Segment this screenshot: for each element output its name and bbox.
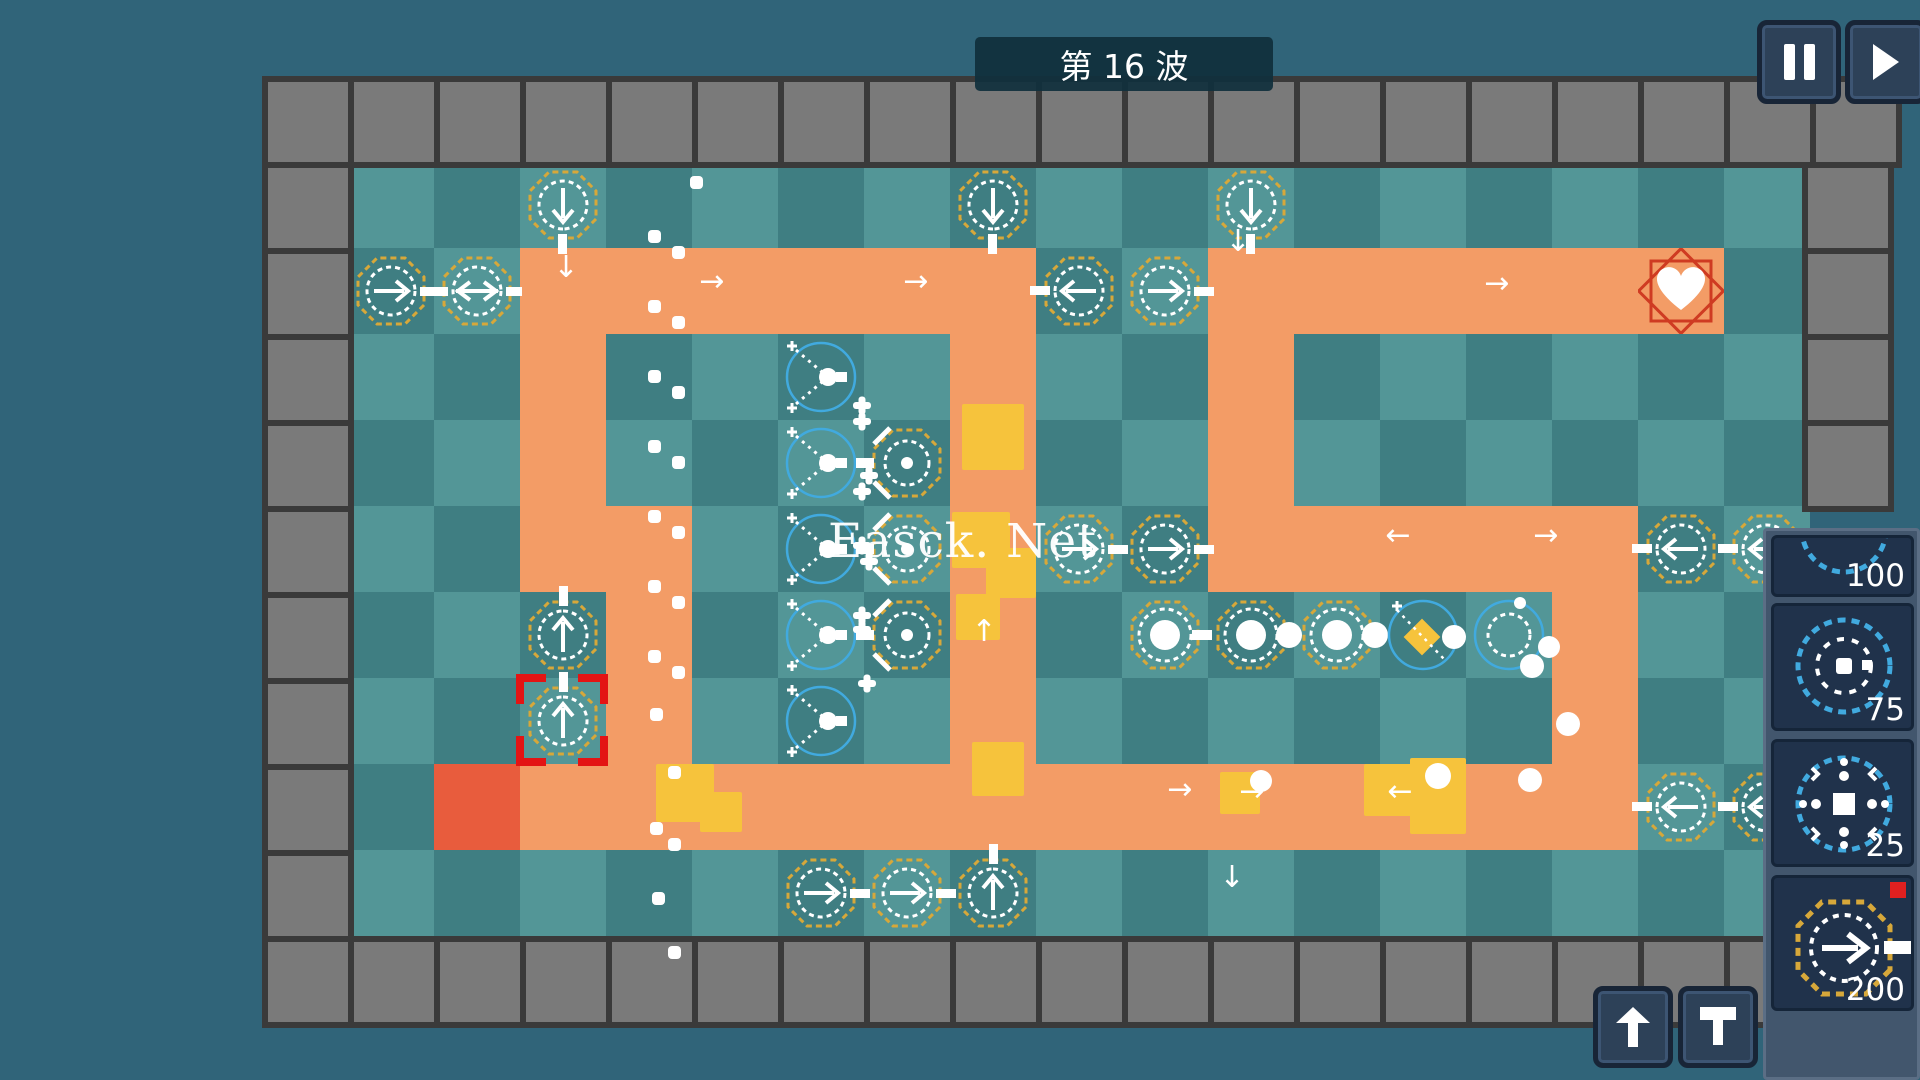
wall-tile	[956, 942, 1036, 1022]
enemy-square	[972, 742, 1024, 796]
direction-arrow: →	[903, 267, 928, 297]
projectile-dot	[648, 300, 661, 313]
projectile-dot	[672, 526, 685, 539]
board-tile[interactable]	[1552, 850, 1638, 936]
board-tile[interactable]	[1122, 334, 1208, 420]
board-tile[interactable]	[1724, 334, 1810, 420]
path-tile	[1122, 764, 1208, 850]
shop-card-blue-circle[interactable]: 100	[1771, 535, 1914, 597]
board-tile[interactable]	[434, 334, 520, 420]
wall-tile	[1214, 82, 1294, 162]
wall-tile	[698, 942, 778, 1022]
wall-tile	[1808, 426, 1888, 506]
board-tile[interactable]	[1380, 334, 1466, 420]
path-tile	[606, 678, 692, 764]
pause-icon	[1784, 44, 1815, 80]
wall-tile	[354, 942, 434, 1022]
board-tile[interactable]	[348, 678, 434, 764]
projectile-ball	[1518, 768, 1542, 792]
tower-arrow-right[interactable]	[778, 850, 864, 936]
shop-card-burst[interactable]: 25	[1771, 739, 1914, 867]
projectile-flake	[853, 620, 871, 638]
projectile-dot	[672, 456, 685, 469]
wall-tile	[268, 770, 348, 850]
tower-arrow-down[interactable]	[950, 162, 1036, 248]
wall-tile	[1128, 82, 1208, 162]
board-tile[interactable]	[348, 334, 434, 420]
path-tile	[1208, 334, 1294, 420]
wall-tile	[268, 254, 348, 334]
tower-bluediamond[interactable]	[1380, 592, 1466, 678]
wall-tile	[784, 82, 864, 162]
board-tile[interactable]	[1466, 678, 1552, 764]
path-tile	[1552, 592, 1638, 678]
wall-tile	[268, 856, 348, 936]
path-tile	[1208, 420, 1294, 506]
wall-tile	[1128, 942, 1208, 1022]
tower-shop-sidebar: 100 75 25	[1763, 528, 1920, 1080]
tower-price: 25	[1866, 828, 1905, 864]
wall-tile	[698, 82, 778, 162]
tower-arrow-up[interactable]	[520, 592, 606, 678]
wall-tile	[526, 82, 606, 162]
projectile-flake	[853, 482, 871, 500]
wall-tile	[268, 598, 348, 678]
board-tile[interactable]	[434, 162, 520, 248]
board-tile[interactable]	[1294, 334, 1380, 420]
wall-tile	[1558, 82, 1638, 162]
board-tile[interactable]	[434, 592, 520, 678]
wall-tile	[784, 942, 864, 1022]
projectile-dot	[672, 596, 685, 609]
direction-arrow: ←	[1387, 777, 1412, 807]
projectile-dot	[648, 510, 661, 523]
direction-arrow: →	[1533, 521, 1558, 551]
wall-tile	[1472, 942, 1552, 1022]
board-tile[interactable]	[1036, 334, 1122, 420]
path-tile	[1208, 248, 1294, 334]
projectile-ball	[1425, 763, 1451, 789]
base-heart	[1638, 248, 1724, 334]
tower-vgun[interactable]	[864, 420, 950, 506]
board-tile[interactable]	[1380, 850, 1466, 936]
board-tile[interactable]	[348, 850, 434, 936]
wall-tile	[1808, 340, 1888, 420]
board-tile[interactable]	[1638, 334, 1724, 420]
tower-cannon-rect[interactable]	[1122, 592, 1208, 678]
board-tile[interactable]	[348, 764, 434, 850]
path-tile	[520, 334, 606, 420]
sell-button[interactable]	[1678, 986, 1758, 1068]
board-tile[interactable]	[1036, 592, 1122, 678]
direction-arrow: ↑	[971, 617, 996, 647]
projectile-dot	[652, 892, 665, 905]
board-tile[interactable]	[1036, 420, 1122, 506]
board-tile[interactable]	[1380, 678, 1466, 764]
tower-arrow-both[interactable]	[434, 248, 520, 334]
projectile-dot	[672, 666, 685, 679]
board-tile[interactable]	[692, 506, 778, 592]
projectile-dot	[648, 440, 661, 453]
board-tile[interactable]	[1294, 420, 1380, 506]
board-tile[interactable]	[1466, 162, 1552, 248]
projectile-dot	[648, 230, 661, 243]
tower-arrow-left[interactable]	[1638, 506, 1724, 592]
wave-label: 第 16 波	[1060, 40, 1189, 88]
selection-bracket	[578, 674, 608, 704]
board-tile[interactable]	[348, 506, 434, 592]
path-tile	[1380, 248, 1466, 334]
path-tile	[950, 248, 1036, 334]
pause-button[interactable]	[1757, 20, 1841, 104]
board-tile[interactable]	[1724, 248, 1810, 334]
board-tile[interactable]	[692, 678, 778, 764]
tower-arrow-right[interactable]	[1122, 248, 1208, 334]
board-tile[interactable]	[606, 850, 692, 936]
board-tile[interactable]	[864, 162, 950, 248]
path-tile	[520, 506, 606, 592]
direction-arrow: →	[1167, 775, 1192, 805]
board-tile[interactable]	[1122, 678, 1208, 764]
path-tile	[1552, 506, 1638, 592]
fast-forward-icon	[1873, 44, 1899, 80]
wall-tile	[870, 82, 950, 162]
projectile-dot	[672, 316, 685, 329]
board-tile[interactable]	[348, 420, 434, 506]
tower-ybeam[interactable]	[778, 678, 864, 764]
wall-tile	[1472, 82, 1552, 162]
board-tile[interactable]	[520, 850, 606, 936]
projectile-ball	[1520, 654, 1544, 678]
board-tile[interactable]	[1122, 850, 1208, 936]
board-tile[interactable]	[1036, 850, 1122, 936]
board-tile[interactable]	[1552, 420, 1638, 506]
board-tile[interactable]	[1466, 334, 1552, 420]
board-tile[interactable]	[348, 592, 434, 678]
board-tile[interactable]	[1638, 850, 1724, 936]
wall-tile	[354, 82, 434, 162]
selection-bracket	[516, 736, 546, 766]
enemy-square	[700, 792, 742, 832]
projectile-dot	[668, 946, 681, 959]
path-tile	[1208, 506, 1294, 592]
board-tile[interactable]	[434, 506, 520, 592]
board-tile[interactable]	[1724, 420, 1810, 506]
tower-price: 75	[1866, 692, 1905, 728]
tower-arrow-right[interactable]	[1122, 506, 1208, 592]
path-tile	[1036, 764, 1122, 850]
board-tile[interactable]	[864, 334, 950, 420]
wall-tile	[1214, 942, 1294, 1022]
tower-price: 100	[1846, 558, 1905, 594]
upgrade-arrow-icon	[1614, 1007, 1652, 1047]
tower-arrow-right[interactable]	[864, 850, 950, 936]
wall-tile	[1042, 82, 1122, 162]
board-tile[interactable]	[1294, 678, 1380, 764]
board-tile[interactable]	[692, 420, 778, 506]
wall-tile	[612, 82, 692, 162]
watermark: Easck. Net	[828, 514, 1097, 569]
board-tile[interactable]	[1122, 420, 1208, 506]
selection-bracket	[578, 736, 608, 766]
direction-arrow: →	[699, 267, 724, 297]
wall-tile	[440, 82, 520, 162]
path-tile	[1552, 764, 1638, 850]
projectile-ball	[1250, 770, 1272, 792]
wall-tile	[268, 82, 348, 162]
board-tile[interactable]	[1638, 420, 1724, 506]
path-tile	[1294, 248, 1380, 334]
path-tile	[778, 764, 864, 850]
tower-ybeam[interactable]	[778, 420, 864, 506]
sell-icon	[1699, 1007, 1737, 1047]
projectile-dot	[650, 708, 663, 721]
wall-tile	[440, 942, 520, 1022]
board-tile[interactable]	[434, 678, 520, 764]
projectile-dot	[690, 176, 703, 189]
tower-cannon-ball[interactable]	[1208, 592, 1294, 678]
projectile-dot	[648, 580, 661, 593]
board-tile[interactable]	[348, 162, 434, 248]
wall-tile	[1386, 82, 1466, 162]
wall-tile	[1808, 168, 1888, 248]
tower-arrow-right[interactable]	[348, 248, 434, 334]
tower-vgun[interactable]	[864, 592, 950, 678]
board-tile[interactable]	[1380, 162, 1466, 248]
wall-tile	[870, 942, 950, 1022]
board-tile[interactable]	[1552, 334, 1638, 420]
spawn-tile	[434, 764, 520, 850]
tower-cannon-ball[interactable]	[1294, 592, 1380, 678]
board-tile[interactable]	[1294, 850, 1380, 936]
notification-badge	[1890, 882, 1906, 898]
tower-ybeam[interactable]	[778, 334, 864, 420]
tower-arrow-down[interactable]	[520, 162, 606, 248]
tower-arrow-left[interactable]	[1638, 764, 1724, 850]
projectile-dot	[668, 766, 681, 779]
upgrade-button[interactable]	[1593, 986, 1673, 1068]
tower-ybeam[interactable]	[778, 592, 864, 678]
projectile-ball	[1556, 712, 1580, 736]
board-tile[interactable]	[692, 592, 778, 678]
path-tile	[778, 248, 864, 334]
wall-tile	[1300, 942, 1380, 1022]
direction-arrow: ↓	[1219, 863, 1244, 893]
wall-tile	[956, 82, 1036, 162]
projectile-flake	[853, 412, 871, 430]
wall-tile	[1300, 82, 1380, 162]
direction-arrow: ↓	[1225, 227, 1250, 257]
board-tile[interactable]	[1380, 420, 1466, 506]
path-tile	[520, 420, 606, 506]
board-tile[interactable]	[1036, 678, 1122, 764]
board-tile[interactable]	[1552, 162, 1638, 248]
projectile-dot	[650, 822, 663, 835]
projectile-dot	[648, 370, 661, 383]
wall-tile	[268, 340, 348, 420]
wall-tile	[1042, 942, 1122, 1022]
wall-tile	[1644, 82, 1724, 162]
board-tile[interactable]	[434, 850, 520, 936]
path-tile	[1552, 248, 1638, 334]
board-tile[interactable]	[1638, 162, 1724, 248]
tower-arrow-left[interactable]	[1036, 248, 1122, 334]
board-tile[interactable]	[1638, 592, 1724, 678]
direction-arrow: →	[1484, 269, 1509, 299]
projectile-flake	[858, 674, 876, 692]
board-tile[interactable]	[1724, 162, 1810, 248]
tower-arrow-up[interactable]	[950, 850, 1036, 936]
board-tile[interactable]	[692, 850, 778, 936]
wall-tile	[268, 942, 348, 1022]
board-tile[interactable]	[692, 162, 778, 248]
path-tile	[864, 764, 950, 850]
projectile-dot	[648, 650, 661, 663]
projectile-dot	[668, 838, 681, 851]
wall-tile	[1386, 942, 1466, 1022]
wall-tile	[268, 168, 348, 248]
board-tile[interactable]	[864, 678, 950, 764]
wall-tile	[268, 512, 348, 592]
projectile-ball	[1538, 636, 1560, 658]
board-tile[interactable]	[1208, 678, 1294, 764]
tower-price: 200	[1846, 972, 1905, 1008]
wall-tile	[1808, 254, 1888, 334]
board-tile[interactable]	[1466, 850, 1552, 936]
board-tile[interactable]	[1036, 162, 1122, 248]
shop-card-arrow[interactable]: 200	[1771, 875, 1914, 1011]
selection-bracket	[516, 674, 546, 704]
fast-forward-button[interactable]	[1845, 20, 1920, 104]
direction-arrow: ←	[1385, 521, 1410, 551]
shop-card-rotor[interactable]: 75	[1771, 603, 1914, 731]
board-tile[interactable]	[1638, 678, 1724, 764]
path-tile	[1294, 506, 1380, 592]
board-tile[interactable]	[1122, 162, 1208, 248]
path-tile	[520, 764, 606, 850]
board-tile[interactable]	[1466, 420, 1552, 506]
enemy-square	[962, 404, 1024, 470]
board-tile[interactable]	[692, 334, 778, 420]
wave-banner: 第 16 波	[975, 37, 1273, 91]
board-tile[interactable]	[434, 420, 520, 506]
direction-arrow: ↓	[553, 253, 578, 283]
projectile-dot	[672, 246, 685, 259]
wall-tile	[268, 426, 348, 506]
board-tile[interactable]	[778, 162, 864, 248]
projectile-dot	[672, 386, 685, 399]
wall-tile	[526, 942, 606, 1022]
wall-tile	[268, 684, 348, 764]
board-tile[interactable]	[1294, 162, 1380, 248]
tower-arrow-down[interactable]	[1208, 162, 1294, 248]
